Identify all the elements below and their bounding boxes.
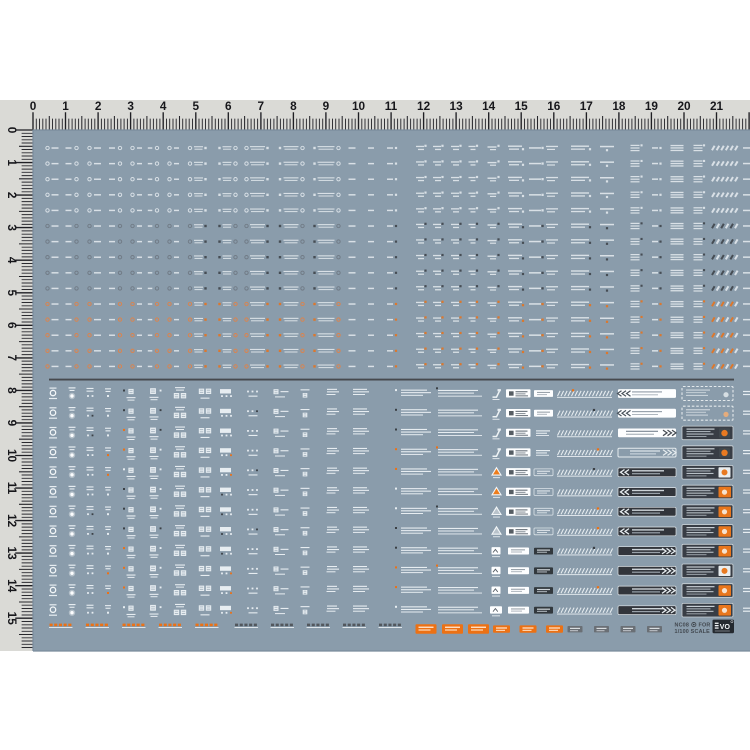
svg-text:19: 19 <box>645 99 659 113</box>
svg-text:0: 0 <box>30 99 37 113</box>
svg-text:16: 16 <box>547 99 561 113</box>
svg-text:VO: VO <box>720 624 731 631</box>
svg-text:3: 3 <box>127 99 134 113</box>
svg-text:7: 7 <box>258 99 265 113</box>
svg-text:0: 0 <box>5 127 19 134</box>
svg-text:11: 11 <box>5 482 19 495</box>
svg-text:15: 15 <box>515 99 529 113</box>
svg-text:9: 9 <box>5 420 19 427</box>
svg-text:1: 1 <box>62 99 69 113</box>
svg-text:12: 12 <box>5 514 19 528</box>
svg-text:1/100 SCALE: 1/100 SCALE <box>675 629 711 635</box>
svg-text:5: 5 <box>5 290 19 297</box>
svg-text:6: 6 <box>225 99 232 113</box>
svg-text:1: 1 <box>5 159 19 166</box>
svg-text:2: 2 <box>95 99 102 113</box>
svg-text:21: 21 <box>710 99 724 113</box>
svg-text:10: 10 <box>352 99 366 113</box>
svg-text:FOR: FOR <box>699 622 711 628</box>
svg-text:9: 9 <box>323 99 330 113</box>
svg-text:10: 10 <box>5 449 19 463</box>
svg-text:13: 13 <box>5 547 19 561</box>
svg-text:NC08: NC08 <box>675 622 690 628</box>
svg-text:7: 7 <box>5 355 19 362</box>
svg-text:18: 18 <box>612 99 626 113</box>
svg-text:12: 12 <box>417 99 431 113</box>
svg-text:3: 3 <box>5 224 19 231</box>
svg-text:6: 6 <box>5 322 19 329</box>
svg-text:17: 17 <box>580 99 594 113</box>
svg-text:2: 2 <box>5 192 19 199</box>
svg-text:5: 5 <box>193 99 200 113</box>
svg-text:13: 13 <box>450 99 464 113</box>
svg-text:14: 14 <box>482 99 496 113</box>
svg-text:8: 8 <box>5 387 19 394</box>
svg-text:8: 8 <box>290 99 297 113</box>
svg-text:4: 4 <box>160 99 167 113</box>
svg-text:20: 20 <box>677 99 691 113</box>
svg-text:11: 11 <box>385 99 398 113</box>
svg-text:15: 15 <box>5 612 19 626</box>
svg-text:4: 4 <box>5 257 19 264</box>
svg-text:14: 14 <box>5 579 19 593</box>
